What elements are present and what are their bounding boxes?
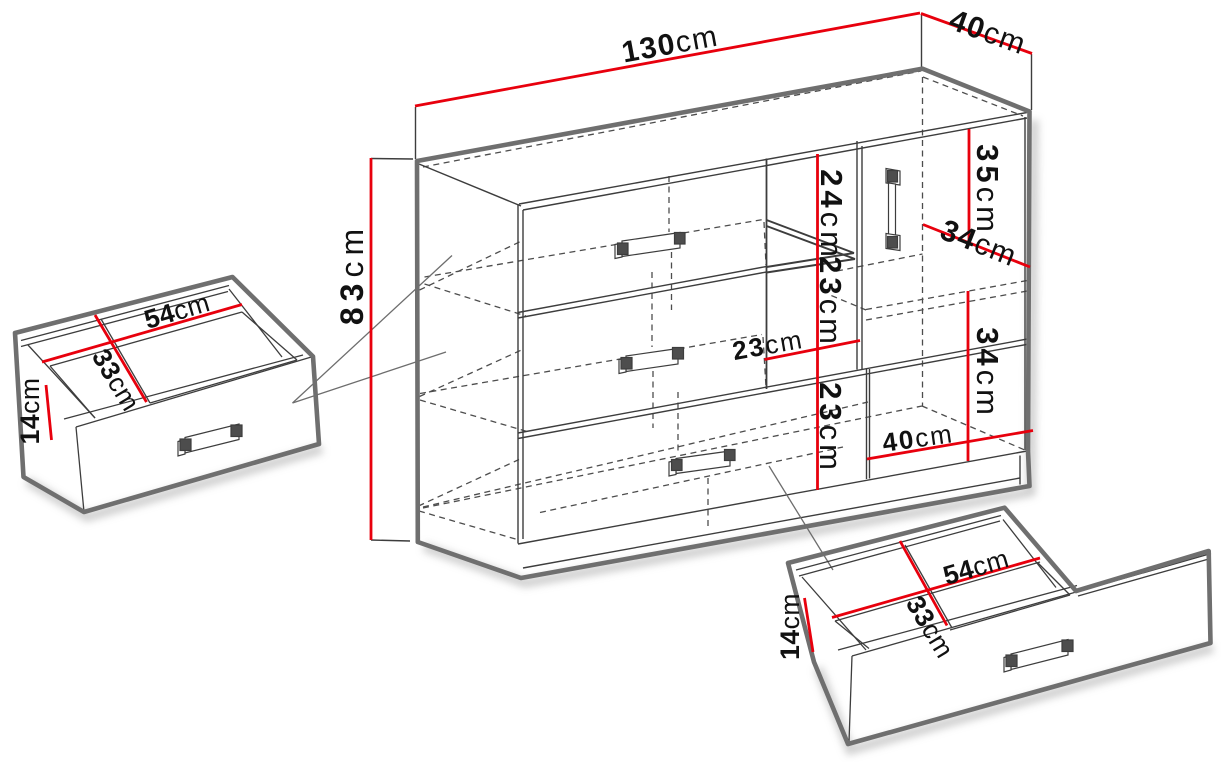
svg-text:24cm: 24cm	[814, 169, 849, 261]
svg-text:23cm: 23cm	[813, 256, 848, 348]
svg-text:54cm: 54cm	[940, 543, 1013, 591]
svg-text:34cm: 34cm	[970, 327, 1005, 419]
svg-text:40cm: 40cm	[880, 418, 955, 458]
svg-text:40cm: 40cm	[945, 4, 1031, 62]
svg-text:35cm: 35cm	[970, 144, 1005, 236]
svg-text:83cm: 83cm	[334, 223, 370, 325]
svg-text:14cm: 14cm	[15, 378, 45, 445]
svg-text:23cm: 23cm	[730, 324, 806, 366]
svg-text:54cm: 54cm	[141, 287, 214, 335]
svg-text:14cm: 14cm	[775, 593, 805, 660]
svg-text:23cm: 23cm	[813, 382, 848, 474]
svg-text:130cm: 130cm	[619, 19, 721, 69]
